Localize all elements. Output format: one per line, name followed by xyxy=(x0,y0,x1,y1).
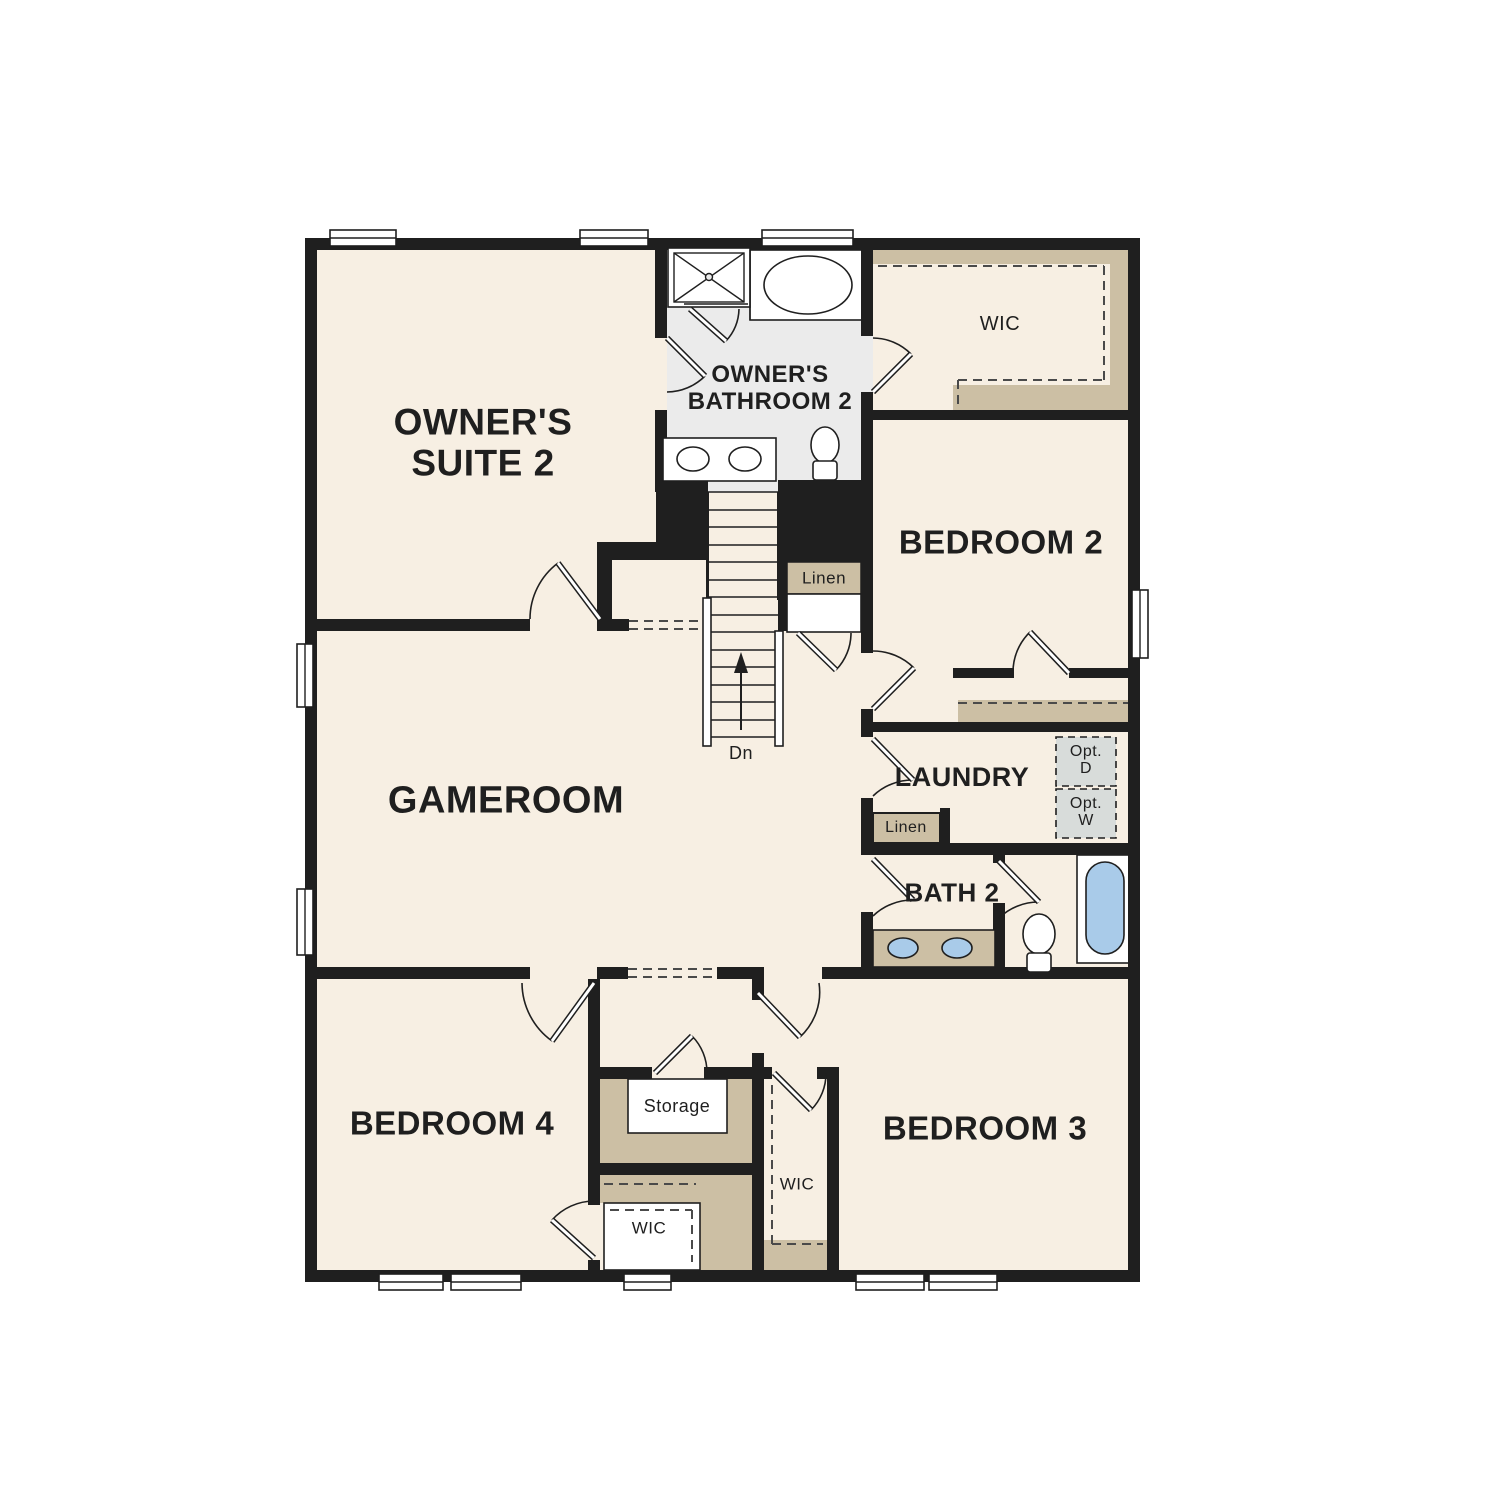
bedroom4-right-wall xyxy=(588,979,600,1205)
room-label-owners-bathroom-2: OWNER'S BATHROOM 2 xyxy=(688,362,853,416)
label-optional-washer: Opt. W xyxy=(1070,796,1102,830)
room-label-bedroom-3: BEDROOM 3 xyxy=(883,1111,1087,1148)
window xyxy=(856,1274,924,1290)
closet-label-wic-bedroom3: WIC xyxy=(780,1174,815,1193)
window xyxy=(330,230,396,246)
closet-label-linen-upper: Linen xyxy=(802,568,846,587)
room-label-bedroom-2: BEDROOM 2 xyxy=(899,525,1103,562)
linen-upper-floor xyxy=(787,594,861,632)
bedroom2-bottom-wall xyxy=(861,722,1140,732)
room-label-bath-2: BATH 2 xyxy=(905,878,1000,907)
window xyxy=(580,230,648,246)
room-label-laundry: LAUNDRY xyxy=(895,762,1030,792)
laundry-bath2-wall xyxy=(861,843,1140,855)
stair-rail-left xyxy=(703,598,711,746)
window xyxy=(451,1274,521,1290)
suite-gameroom-wall xyxy=(305,619,530,631)
window xyxy=(297,889,313,955)
closet-label-linen-lower: Linen xyxy=(885,819,927,837)
wic-bedroom4-shelf-right xyxy=(700,1175,752,1270)
window xyxy=(1132,590,1148,658)
window xyxy=(624,1274,671,1290)
vanity-owners xyxy=(663,438,776,481)
wic-shelf-top xyxy=(873,250,1128,264)
closet-label-wic-bedroom4: WIC xyxy=(632,1218,667,1237)
exterior-wall-left xyxy=(305,238,317,1282)
toilet-bath2 xyxy=(1023,914,1055,972)
stair-rail-right xyxy=(775,631,783,746)
bedroom2-closet-shelf xyxy=(958,700,1128,722)
closet-label-storage: Storage xyxy=(644,1096,711,1116)
wic-bedroom3-right-wall xyxy=(827,1079,839,1270)
wic-bottom-wall xyxy=(861,410,1140,420)
room-label-gameroom: GAMEROOM xyxy=(388,780,624,823)
floor-plan: OWNER'S SUITE 2 OWNER'S BATHROOM 2 WIC B… xyxy=(0,0,1500,1500)
label-optional-dryer: Opt. D xyxy=(1070,744,1102,778)
window xyxy=(297,644,313,707)
exterior-wall-right xyxy=(1128,238,1140,1282)
room-label-owners-suite-2: OWNER'S SUITE 2 xyxy=(394,402,573,485)
wic-bedroom4-shelf-top xyxy=(600,1175,700,1203)
vanity-bath2 xyxy=(873,930,995,967)
shower xyxy=(668,248,750,307)
room-label-wic-master: WIC xyxy=(980,313,1020,335)
label-stairs-down: Dn xyxy=(729,743,753,763)
window xyxy=(929,1274,997,1290)
toilet-owners xyxy=(811,427,839,480)
room-label-bedroom-4: BEDROOM 4 xyxy=(350,1106,554,1143)
bathtub-bath2 xyxy=(1086,862,1124,954)
window xyxy=(762,230,853,246)
wic-shelf-bottom xyxy=(953,385,1128,410)
window xyxy=(379,1274,443,1290)
